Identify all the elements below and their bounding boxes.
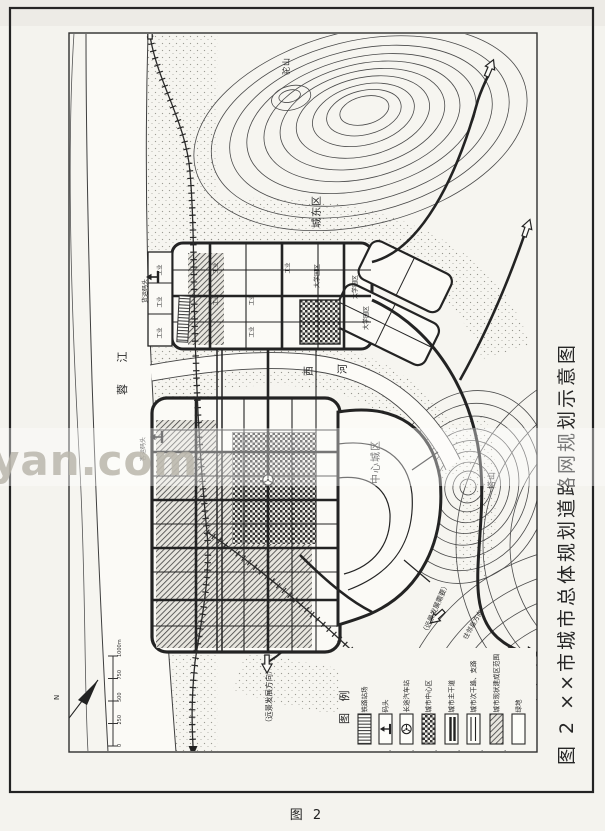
legend-item-label-secondary: 城市次干路、支路	[470, 660, 477, 712]
legend-item-label-bus-station: 长途汽车站	[403, 680, 410, 713]
green-space-swatch	[512, 714, 525, 744]
city-center-area	[232, 432, 316, 544]
label-industry-code-3: 工业	[158, 327, 164, 338]
label-wharf-freight: 货运码头	[143, 279, 149, 303]
label-north: N	[54, 694, 61, 699]
secondary-road-swatch	[467, 714, 480, 744]
legend-item-label-wharf: 码头	[382, 699, 389, 712]
label-industry-code-5: 工业	[214, 294, 220, 305]
label-mountain-se: 塔山	[488, 471, 496, 489]
label-industry-code-8: 工业	[286, 262, 292, 273]
built-up-area-swatch	[490, 714, 503, 744]
legend-bus-icon	[402, 724, 411, 733]
label-industry-code-4: 工业	[214, 262, 220, 273]
label-dev-direction: （远景发展方向）	[265, 666, 273, 726]
label-university-block-1: 大学园区	[315, 264, 321, 288]
label-river-rongjiang: 蓉 江	[117, 343, 128, 396]
legend-item-label-green: 绿地	[515, 699, 522, 712]
label-industry-code-6: 工业	[250, 294, 256, 305]
watermark: yan.com	[0, 436, 198, 485]
figure-caption: 图 2	[262, 804, 352, 823]
legend-item-label-arterial: 城市主干道	[448, 680, 455, 713]
scanned-figure-page: 0 250 500 750 1000m 图 2 ××市城市总体规划道路网规划示意…	[0, 0, 605, 831]
label-university-block-2: 大学园区	[353, 275, 359, 299]
svg-text:1000m: 1000m	[117, 639, 123, 657]
figure-title: 图 2 ××市城市总体规划道路网规划示意图	[558, 342, 577, 765]
svg-text:0: 0	[117, 744, 123, 747]
label-district-center: 中心城区	[372, 440, 382, 484]
rail-yard-symbol	[177, 296, 190, 343]
svg-text:750: 750	[117, 670, 123, 680]
svg-text:500: 500	[117, 692, 123, 702]
legend-header: 图 例	[339, 686, 350, 724]
center-area-swatch	[422, 714, 435, 744]
label-mountain-ne: 驼山	[283, 57, 291, 75]
label-industry-code-2: 工业	[158, 296, 164, 307]
rail-yard-swatch	[358, 714, 371, 744]
label-industry-code-7: 工业	[250, 326, 256, 337]
legend-item-label-center-area: 城市中心区	[425, 680, 432, 713]
label-university-block-3: 大学园区	[364, 306, 370, 330]
legend-item-label-built-up: 城市现状建成区范围	[493, 654, 500, 713]
bus-station-icon	[263, 475, 273, 485]
label-district-east: 城东区	[313, 195, 323, 228]
label-west-river-char1: 西	[305, 366, 315, 376]
svg-text:250: 250	[117, 715, 123, 725]
label-industry-code-1: 工业	[158, 264, 164, 275]
legend-item-label-rail-yard: 铁路站场	[361, 686, 368, 712]
label-west-river-char2: 河	[339, 364, 349, 374]
